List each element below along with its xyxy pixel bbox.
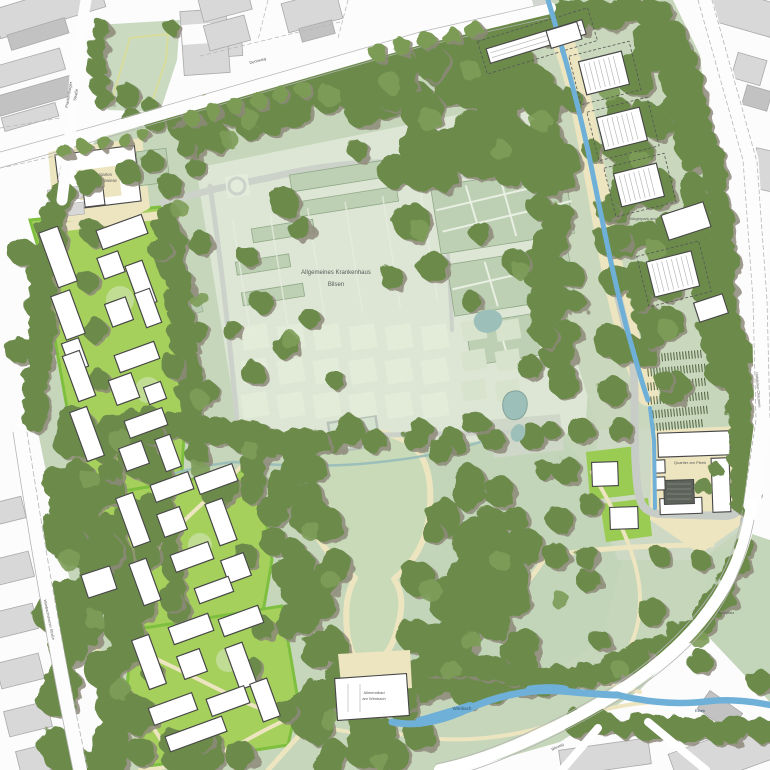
svg-text:Allmendbad: Allmendbad [363, 690, 384, 695]
svg-text:Eibek: Eibek [695, 708, 705, 713]
svg-text:Bilsen: Bilsen [328, 282, 344, 288]
svg-text:Allgemeines Krankenhaus: Allgemeines Krankenhaus [301, 270, 371, 276]
svg-text:am Wimbach: am Wimbach [362, 696, 385, 701]
svg-text:Spielplatz: Spielplatz [718, 611, 735, 615]
svg-text:Quartier am Pleek: Quartier am Pleek [674, 460, 706, 465]
svg-text:Wimbach: Wimbach [453, 706, 472, 711]
